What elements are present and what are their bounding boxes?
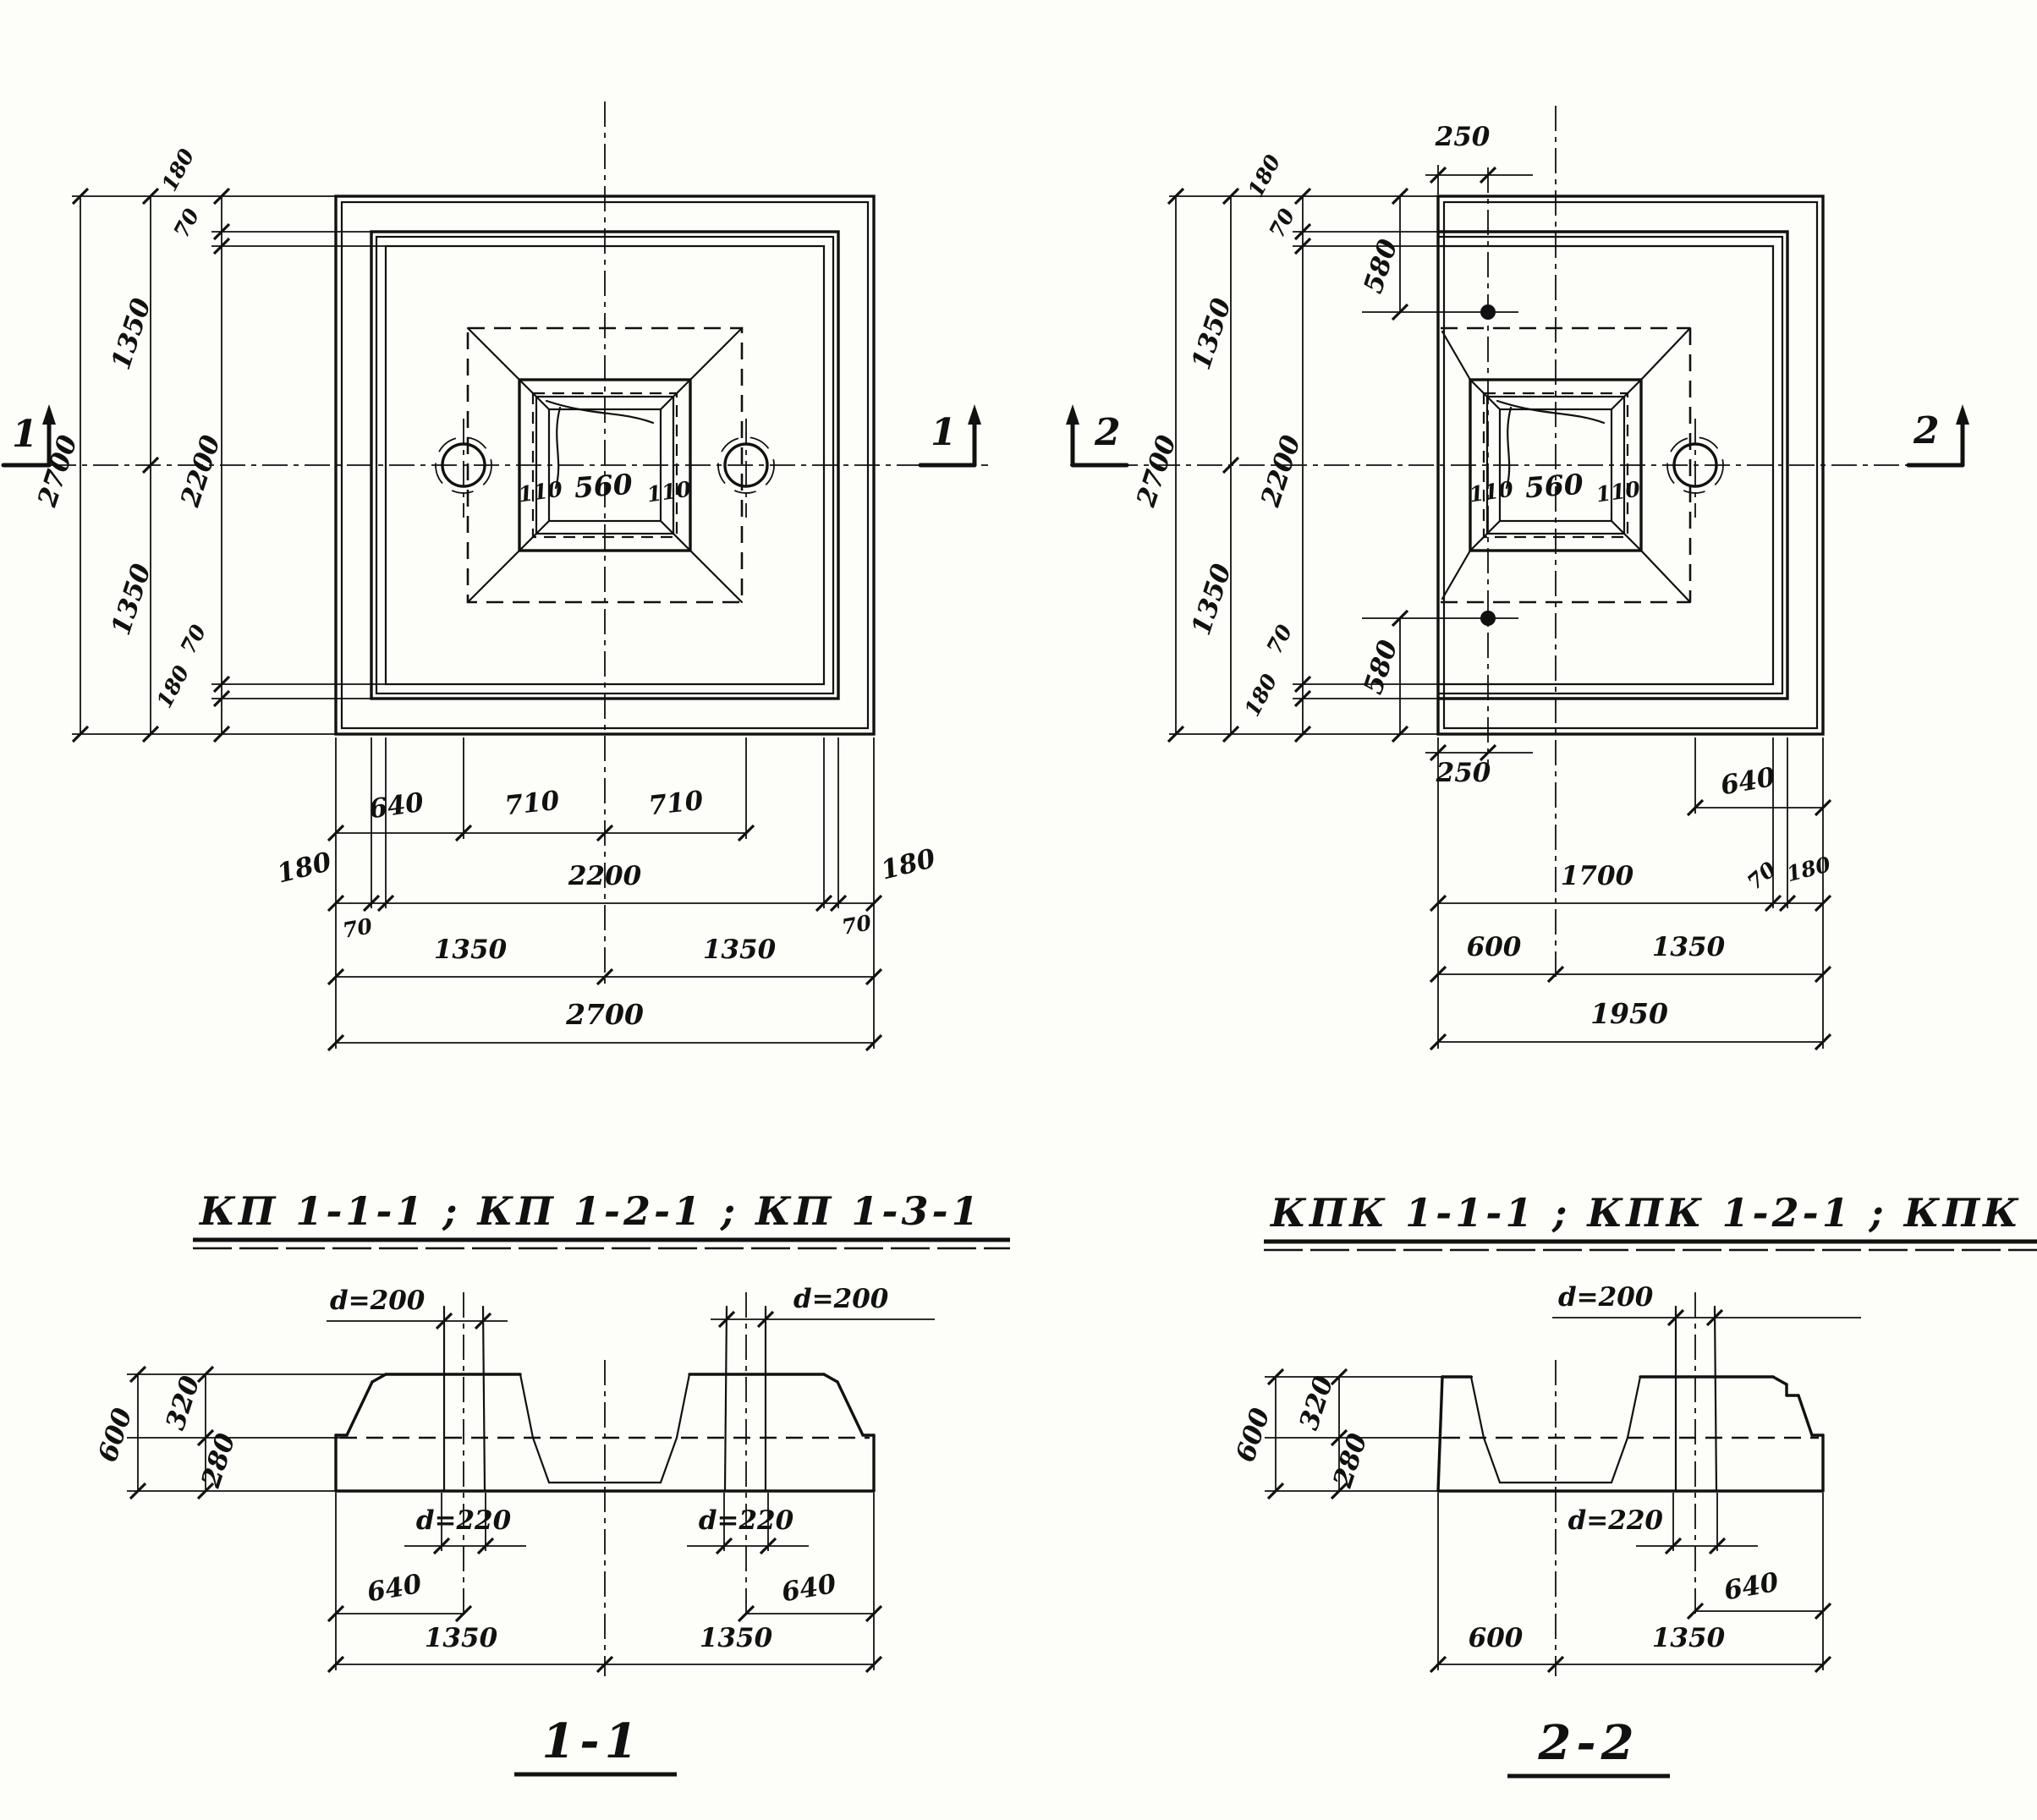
title-kpk: КПК 1-1-1 ; КПК 1-2-1 ; КПК 1-3-1	[1264, 1190, 2037, 1250]
dim-label: 1350	[1186, 294, 1238, 374]
dim-label: 250	[1435, 122, 1491, 152]
s2-pipe	[1676, 1307, 1716, 1490]
s1-dims-height: 600 320 280	[92, 1367, 387, 1499]
s2-dim-d220: d=220	[1568, 1493, 1758, 1554]
dim-label: 560	[1524, 468, 1584, 505]
kpk-dims-bottom: 250 640 1700 70 180 600 1350 1950	[1425, 737, 1833, 1050]
dim-label: 1350	[1652, 932, 1726, 962]
dim-label: 70	[169, 204, 205, 242]
section-1-1: d=200 d=200 d=220 d=220 600 320 280	[92, 1284, 935, 1774]
dim-label: 110	[645, 477, 693, 507]
s2-section-label: 2-2	[1537, 1715, 1639, 1771]
dim-label: d=200	[1558, 1282, 1654, 1313]
dim-label: 180	[274, 847, 335, 890]
dim-label: 180	[156, 145, 199, 195]
dim-label: 180	[151, 661, 194, 712]
dim-label: 1350	[1652, 1623, 1726, 1653]
dim-label: 180	[1243, 151, 1285, 201]
kp-section-marker-right: 1	[920, 404, 981, 465]
dim-label: 580	[1358, 636, 1403, 698]
dim-label: 1950	[1590, 997, 1668, 1030]
dim-label: 1350	[106, 560, 157, 639]
section-cut-label: 1	[12, 413, 38, 456]
dim-label: 180	[1784, 852, 1833, 886]
dim-label: 640	[779, 1569, 838, 1609]
dim-label: 600	[1230, 1404, 1276, 1466]
section-cut-label: 2	[1913, 409, 1940, 452]
dim-label: 1350	[700, 1623, 773, 1653]
dim-label: d=200	[793, 1284, 889, 1314]
dim-label: 600	[1467, 932, 1522, 962]
dim-label: 1350	[106, 294, 157, 374]
dim-label: d=220	[416, 1505, 512, 1536]
dim-label: 1350	[434, 935, 508, 965]
kp-socket-scribble	[546, 401, 653, 423]
kpk-socket-scribble	[1497, 401, 1604, 423]
dim-label: 1700	[1561, 861, 1634, 891]
dim-label: 2700	[32, 431, 84, 512]
dim-label: 640	[367, 787, 426, 825]
dim-label: 180	[878, 843, 939, 886]
kpk-section-marker-right: 2	[1908, 404, 1969, 465]
dim-label: 560	[573, 468, 633, 505]
dim-label: 110	[517, 477, 564, 507]
section-cut-label: 2	[1094, 411, 1121, 454]
drawing-canvas: 1 1 2700 1350 1350 2200 180 70 70 180	[0, 0, 2037, 1820]
dim-label: 280	[195, 1429, 242, 1492]
dim-label: 600	[92, 1404, 138, 1466]
kp-title-text: КП 1-1-1 ; КП 1-2-1 ; КП 1-3-1	[198, 1188, 982, 1234]
dim-label: d=200	[330, 1286, 426, 1316]
s1-dim-d220-right: d=220	[687, 1493, 809, 1554]
dim-label: 70	[1262, 620, 1298, 658]
dim-label: 70	[1265, 204, 1300, 242]
dim-label: 640	[1718, 762, 1777, 802]
dim-label: 710	[647, 786, 706, 822]
dim-label: 250	[1436, 758, 1491, 788]
kp-dims-bottom: 640 710 710 180 2200 180 70 70 1350 1350…	[274, 737, 939, 1050]
dim-label: 2700	[565, 998, 644, 1031]
dim-label: 710	[503, 786, 562, 822]
dim-label: 2200	[568, 861, 642, 891]
dim-label: 1350	[1186, 560, 1238, 639]
dim-label: 1350	[703, 935, 777, 965]
dim-label: 600	[1469, 1623, 1524, 1653]
s1-pipe-right	[725, 1307, 766, 1490]
section-2-2: d=200 d=220 600 320 280 640 600 1350 2-2	[1230, 1282, 1861, 1776]
dim-label: 580	[1358, 235, 1403, 297]
s2-socket-wall	[1471, 1377, 1484, 1438]
kpk-title-text: КПК 1-1-1 ; КПК 1-2-1 ; КПК 1-3-1	[1269, 1190, 2037, 1236]
dim-label: 110	[1595, 477, 1642, 507]
kp-dims-left: 2700 1350 1350 2200 180 70 70 180	[32, 145, 386, 742]
s1-dim-d200-left: d=200	[327, 1286, 508, 1329]
kpk-section-marker-left: 2	[1066, 404, 1127, 465]
dim-label: 180	[1239, 670, 1282, 721]
dim-label: 280	[1327, 1429, 1374, 1492]
s2-dim-d200: d=200	[1552, 1282, 1861, 1325]
kpk-dim-top250: 250	[1425, 122, 1533, 195]
dim-label: 70	[341, 913, 375, 943]
s1-dim-d200-right: d=200	[711, 1284, 935, 1327]
dim-label: 2700	[1131, 431, 1183, 512]
dim-label: d=220	[699, 1505, 794, 1536]
plan-kp: 1 1 2700 1350 1350 2200 180 70 70 180	[3, 101, 988, 1050]
dim-label: 1350	[425, 1623, 498, 1653]
kpk-dims-left: 2700 1350 1350 2200 180 70 70 180 580 58…	[1131, 151, 1518, 742]
dim-label: 2200	[175, 431, 227, 512]
dim-label: 2200	[1255, 431, 1307, 512]
dim-label: 70	[1743, 857, 1782, 895]
s2-dims-height: 600 320 280	[1230, 1369, 1473, 1499]
dim-label: 320	[160, 1372, 206, 1434]
blueprint-page: 1 1 2700 1350 1350 2200 180 70 70 180	[0, 0, 2037, 1820]
dim-label: 70	[176, 620, 211, 658]
dim-label: 640	[1721, 1567, 1781, 1607]
s2-body	[1438, 1377, 1823, 1491]
dim-label: d=220	[1568, 1505, 1664, 1536]
s1-pipe-left	[444, 1307, 485, 1490]
s1-section-label: 1-1	[541, 1713, 642, 1769]
s1-socket-wall	[520, 1374, 533, 1438]
title-kp: КП 1-1-1 ; КП 1-2-1 ; КП 1-3-1	[193, 1188, 1010, 1248]
dim-label: 110	[1468, 477, 1515, 507]
dim-label: 320	[1293, 1372, 1339, 1434]
dim-label: 70	[840, 910, 874, 940]
plan-kpk: 2 2 250 2700 1350 1350 2200 180 70 70 18…	[1066, 106, 1969, 1050]
s1-dim-d220-left: d=220	[404, 1493, 526, 1554]
section-cut-label: 1	[931, 411, 957, 454]
dim-label: 640	[365, 1569, 424, 1609]
